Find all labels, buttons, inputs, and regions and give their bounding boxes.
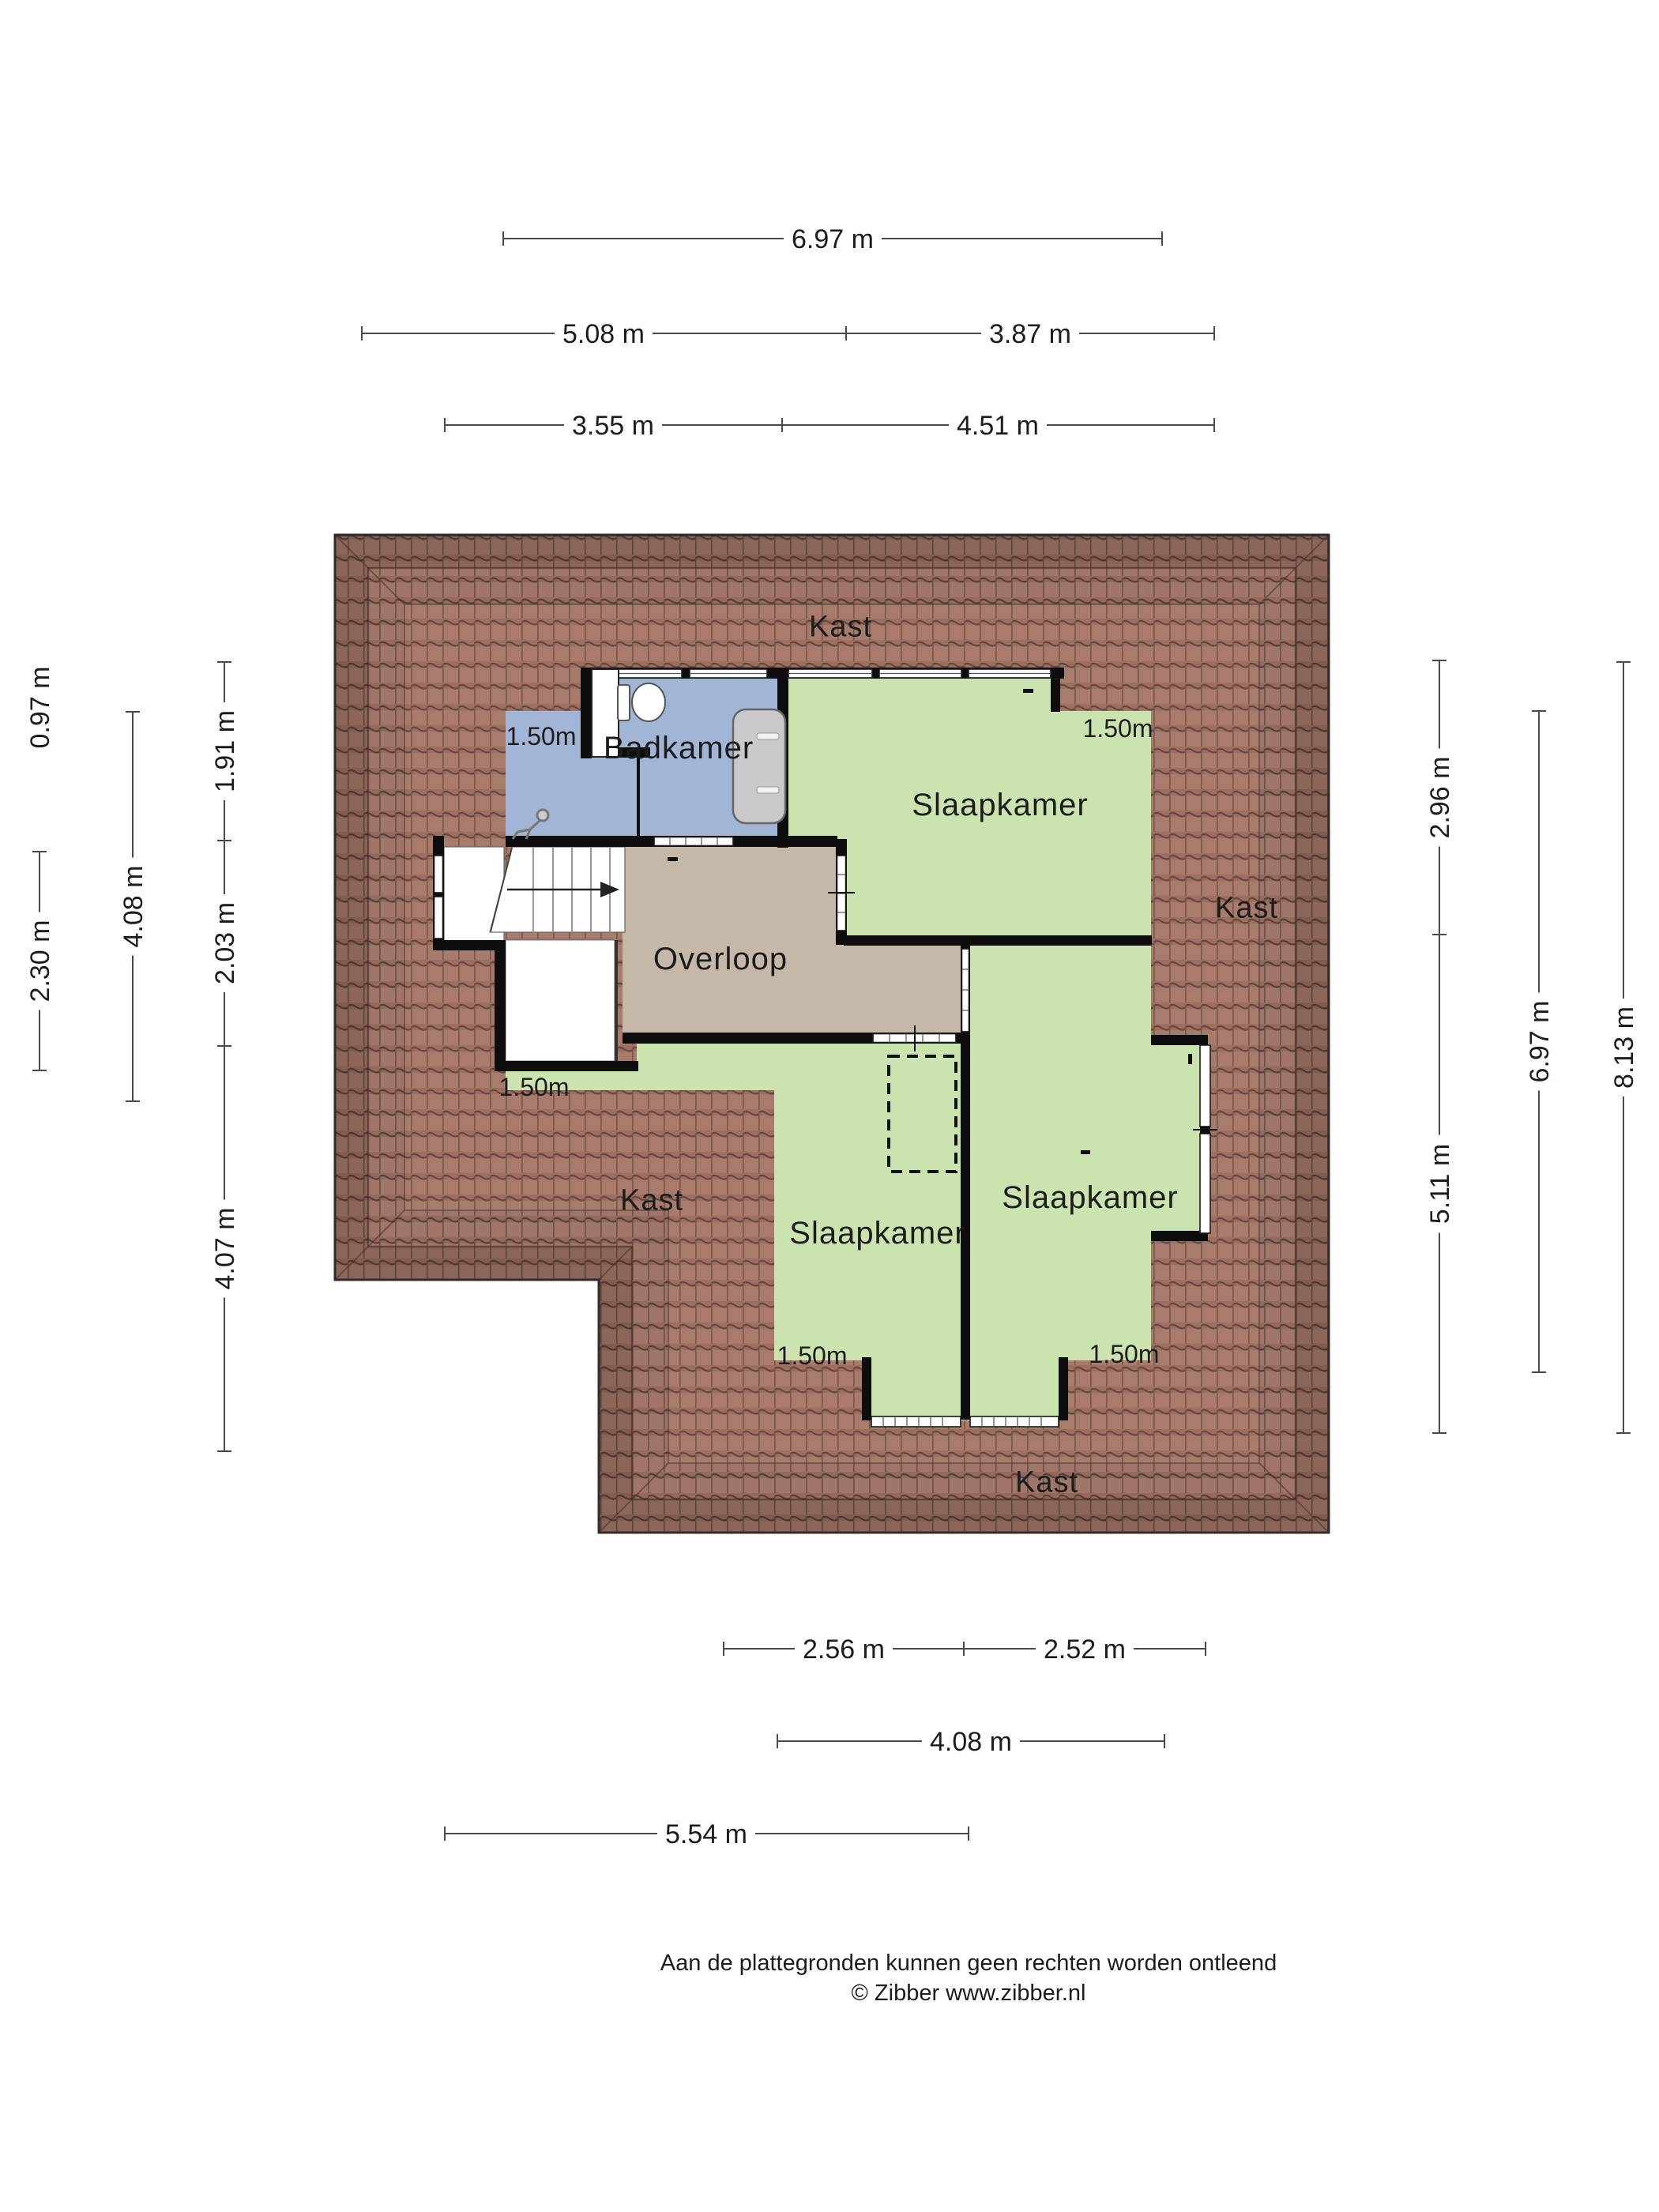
- svg-text:5.08 m: 5.08 m: [562, 319, 645, 349]
- svg-text:3.87 m: 3.87 m: [989, 319, 1071, 349]
- tick-slaapkamer-tr: [1023, 689, 1033, 693]
- tick-overloop: [668, 857, 678, 861]
- label-kast-right: Kast: [1215, 891, 1278, 924]
- svg-text:4.51 m: 4.51 m: [957, 411, 1039, 441]
- floorplan-page: Kast Badkamer Slaapkamer Kast Overloop K…: [0, 0, 1659, 2212]
- label-overloop: Overloop: [653, 942, 788, 976]
- dim-left-408: 4.08 m: [117, 712, 149, 1101]
- dim-top-451: 4.51 m: [782, 409, 1214, 441]
- dimensions-right: 2.96 m 5.11 m 6.97 m 8.13 m: [1424, 660, 1639, 1433]
- dim-bottom-554: 5.54 m: [445, 1818, 969, 1849]
- svg-text:2.56 m: 2.56 m: [803, 1635, 885, 1665]
- tick-right-window: [1188, 1054, 1192, 1064]
- dim-right-511: 5.11 m: [1424, 935, 1455, 1433]
- door-slaapkamer-bottom-right: [962, 949, 969, 1032]
- footer: Aan de plattegronden kunnen geen rechten…: [660, 1951, 1277, 2006]
- window-top-wall: [600, 669, 1051, 678]
- svg-text:3.55 m: 3.55 m: [572, 411, 654, 441]
- svg-text:4.07 m: 4.07 m: [210, 1208, 240, 1290]
- svg-text:2.30 m: 2.30 m: [25, 920, 55, 1003]
- window-left-wall: [434, 856, 443, 939]
- dim-right-813: 8.13 m: [1608, 662, 1639, 1433]
- label-slaapkamer-top-right: Slaapkamer: [912, 788, 1088, 822]
- floorplan-canvas: Kast Badkamer Slaapkamer Kast Overloop K…: [0, 0, 1659, 2212]
- dim-top-508: 5.08 m: [362, 318, 846, 349]
- dimensions-left: 0.97 m 2.30 m 4.08 m 1.91 m: [24, 659, 240, 1452]
- dim-top-355: 3.55 m: [445, 409, 782, 441]
- dim-left-191: 1.91 m: [209, 662, 240, 841]
- footer-copyright: © Zibber www.zibber.nl: [852, 1981, 1086, 2006]
- label-slaapkamer-bottom-right: Slaapkamer: [1002, 1180, 1178, 1215]
- svg-text:5.54 m: 5.54 m: [665, 1819, 747, 1849]
- window-bottom-middle: [871, 1416, 961, 1427]
- dimensions-bottom: 2.56 m 2.52 m 4.08 m 5.54 m: [445, 1633, 1206, 1849]
- marker-overloop-left: 1.50m: [499, 1073, 570, 1101]
- svg-text:6.97 m: 6.97 m: [1525, 1001, 1555, 1083]
- dim-bottom-408: 4.08 m: [777, 1725, 1164, 1757]
- dashed-void-outline: [889, 1056, 956, 1172]
- dim-left-407: 4.07 m: [209, 1046, 240, 1451]
- stair-void-below: [506, 940, 615, 1061]
- dim-top-387: 3.87 m: [846, 318, 1214, 349]
- svg-text:2.96 m: 2.96 m: [1425, 757, 1455, 839]
- label-kast-bottom: Kast: [1015, 1465, 1078, 1499]
- dim-right-697: 6.97 m: [1523, 711, 1555, 1372]
- svg-text:2.52 m: 2.52 m: [1044, 1635, 1126, 1665]
- svg-text:1.91 m: 1.91 m: [210, 710, 240, 792]
- svg-text:5.11 m: 5.11 m: [1425, 1144, 1455, 1224]
- marker-slaapkamer-tr: 1.50m: [1083, 714, 1153, 743]
- rooms: [444, 678, 1204, 1420]
- marker-slaapkamer-bm: 1.50m: [777, 1341, 848, 1370]
- marker-badkamer: 1.50m: [506, 722, 577, 750]
- dim-right-296: 2.96 m: [1424, 660, 1455, 935]
- label-kast-left: Kast: [620, 1183, 683, 1217]
- stair-void-thin-wall: [615, 940, 618, 1061]
- tick-slaapkamer-br: [1081, 1150, 1090, 1154]
- footer-disclaimer: Aan de plattegronden kunnen geen rechten…: [660, 1951, 1277, 1976]
- dim-bottom-256: 2.56 m: [724, 1633, 964, 1665]
- dim-left-097: 0.97 m: [24, 659, 55, 757]
- marker-slaapkamer-br: 1.50m: [1089, 1340, 1160, 1368]
- svg-text:4.08 m: 4.08 m: [930, 1727, 1012, 1757]
- label-slaapkamer-bottom-middle: Slaapkamer: [789, 1216, 965, 1251]
- svg-text:4.08 m: 4.08 m: [118, 866, 149, 948]
- svg-text:0.97 m: 0.97 m: [25, 667, 55, 749]
- svg-text:2.03 m: 2.03 m: [210, 902, 240, 984]
- label-kast-top: Kast: [809, 610, 872, 643]
- label-badkamer: Badkamer: [604, 731, 754, 766]
- dim-top-697: 6.97 m: [503, 223, 1162, 254]
- dim-left-230: 2.30 m: [24, 852, 55, 1070]
- dimensions-top: 6.97 m 5.08 m 3.87 m 3.55 m 4.51 m: [362, 223, 1214, 441]
- bathtub: [733, 709, 785, 823]
- svg-text:6.97 m: 6.97 m: [792, 224, 874, 254]
- door-badkamer: [654, 837, 733, 846]
- window-bottom-right: [970, 1416, 1059, 1427]
- toilet: [618, 683, 665, 721]
- dim-bottom-252: 2.52 m: [964, 1633, 1206, 1665]
- svg-text:8.13 m: 8.13 m: [1609, 1006, 1639, 1089]
- dim-left-203: 2.03 m: [209, 841, 240, 1046]
